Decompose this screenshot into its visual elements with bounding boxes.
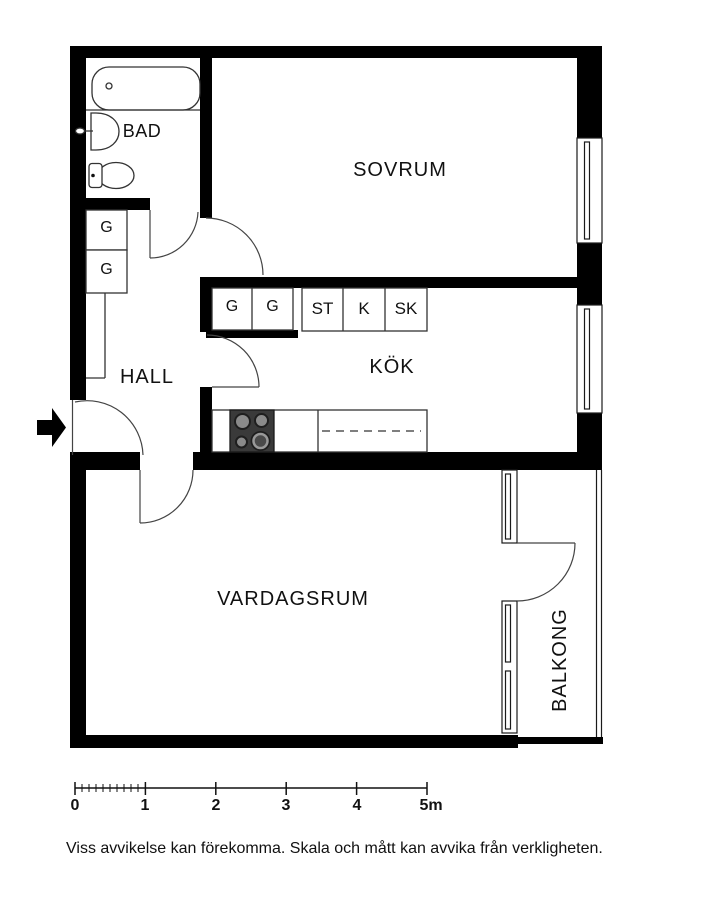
walls bbox=[70, 46, 603, 748]
balcony-railing bbox=[597, 470, 602, 737]
wall-top bbox=[70, 46, 602, 58]
bedroom-door-swing bbox=[206, 218, 263, 275]
room-label-bedroom: SOVRUM bbox=[310, 159, 490, 182]
wall-left-upper bbox=[70, 46, 86, 400]
scale-label-0: 0 bbox=[55, 797, 95, 815]
toilet-flush-icon bbox=[91, 174, 95, 178]
room-label-balcony: BALKONG bbox=[548, 580, 572, 740]
scale-label-1: 1 bbox=[125, 797, 165, 815]
wall-bathroom-hall bbox=[70, 198, 150, 210]
bathtub-drain-icon bbox=[106, 83, 112, 89]
room-label-living-room: VARDAGSRUM bbox=[178, 588, 408, 611]
wall-hall-kitchen-lower bbox=[200, 387, 212, 452]
wall-bathroom-bedroom bbox=[200, 58, 212, 218]
stove-burner-1 bbox=[235, 414, 250, 429]
kitchen-unit-label-sk: SK bbox=[385, 299, 427, 319]
kitchen-wardrobe-label-1: G bbox=[212, 298, 252, 316]
wall-right-between-windows bbox=[577, 243, 602, 305]
toilet-bowl-icon bbox=[98, 163, 134, 189]
room-label-kitchen: KÖK bbox=[322, 356, 462, 379]
wall-left-lower bbox=[70, 455, 86, 748]
toilet-tank-icon bbox=[89, 164, 102, 188]
room-label-hall: HALL bbox=[77, 366, 217, 389]
wall-right-above-bedroom-window bbox=[577, 46, 602, 138]
scale-label-4: 4 bbox=[337, 797, 377, 815]
disclaimer-text: Viss avvikelse kan förekomma. Skala och … bbox=[66, 840, 603, 858]
stove-burner-4-inner bbox=[254, 434, 268, 448]
stove-burner-3 bbox=[236, 437, 247, 448]
wall-bottom bbox=[70, 735, 518, 748]
entrance-arrow-icon bbox=[37, 408, 66, 447]
scale-label-2: 2 bbox=[196, 797, 236, 815]
wall-kitchen-livingroom bbox=[193, 452, 602, 470]
kitchen-wardrobe-label-2: G bbox=[252, 298, 293, 316]
wall-hall-livingroom bbox=[70, 452, 140, 470]
hall-wardrobe-label-2: G bbox=[86, 261, 127, 279]
balcony-window-lower-glass-b bbox=[506, 671, 511, 729]
floor-plan-page: BAD SOVRUM HALL KÖK VARDAGSRUM BALKONG G… bbox=[0, 0, 704, 900]
bathroom-door-swing bbox=[150, 212, 198, 258]
room-label-bathroom: BAD bbox=[102, 121, 182, 142]
balcony-window-lower-glass-a bbox=[506, 605, 511, 662]
wall-bedroom-kitchen bbox=[200, 277, 577, 288]
scale-bar bbox=[75, 782, 427, 795]
kitchen-window-glass bbox=[585, 309, 590, 409]
doors bbox=[73, 210, 576, 601]
kitchen-unit-label-st: ST bbox=[302, 299, 343, 319]
bedroom-window-glass bbox=[585, 142, 590, 239]
kitchen-unit-label-k: K bbox=[343, 299, 385, 319]
sink-tap-icon bbox=[76, 128, 85, 134]
balcony-window-upper-glass bbox=[506, 474, 511, 539]
livingroom-door-swing bbox=[140, 470, 193, 523]
stove-burner-2 bbox=[255, 414, 268, 427]
entrance-door-swing bbox=[75, 401, 143, 455]
scale-label-5m: 5m bbox=[411, 797, 451, 815]
hall-wardrobe-label-1: G bbox=[86, 219, 127, 237]
scale-label-3: 3 bbox=[266, 797, 306, 815]
